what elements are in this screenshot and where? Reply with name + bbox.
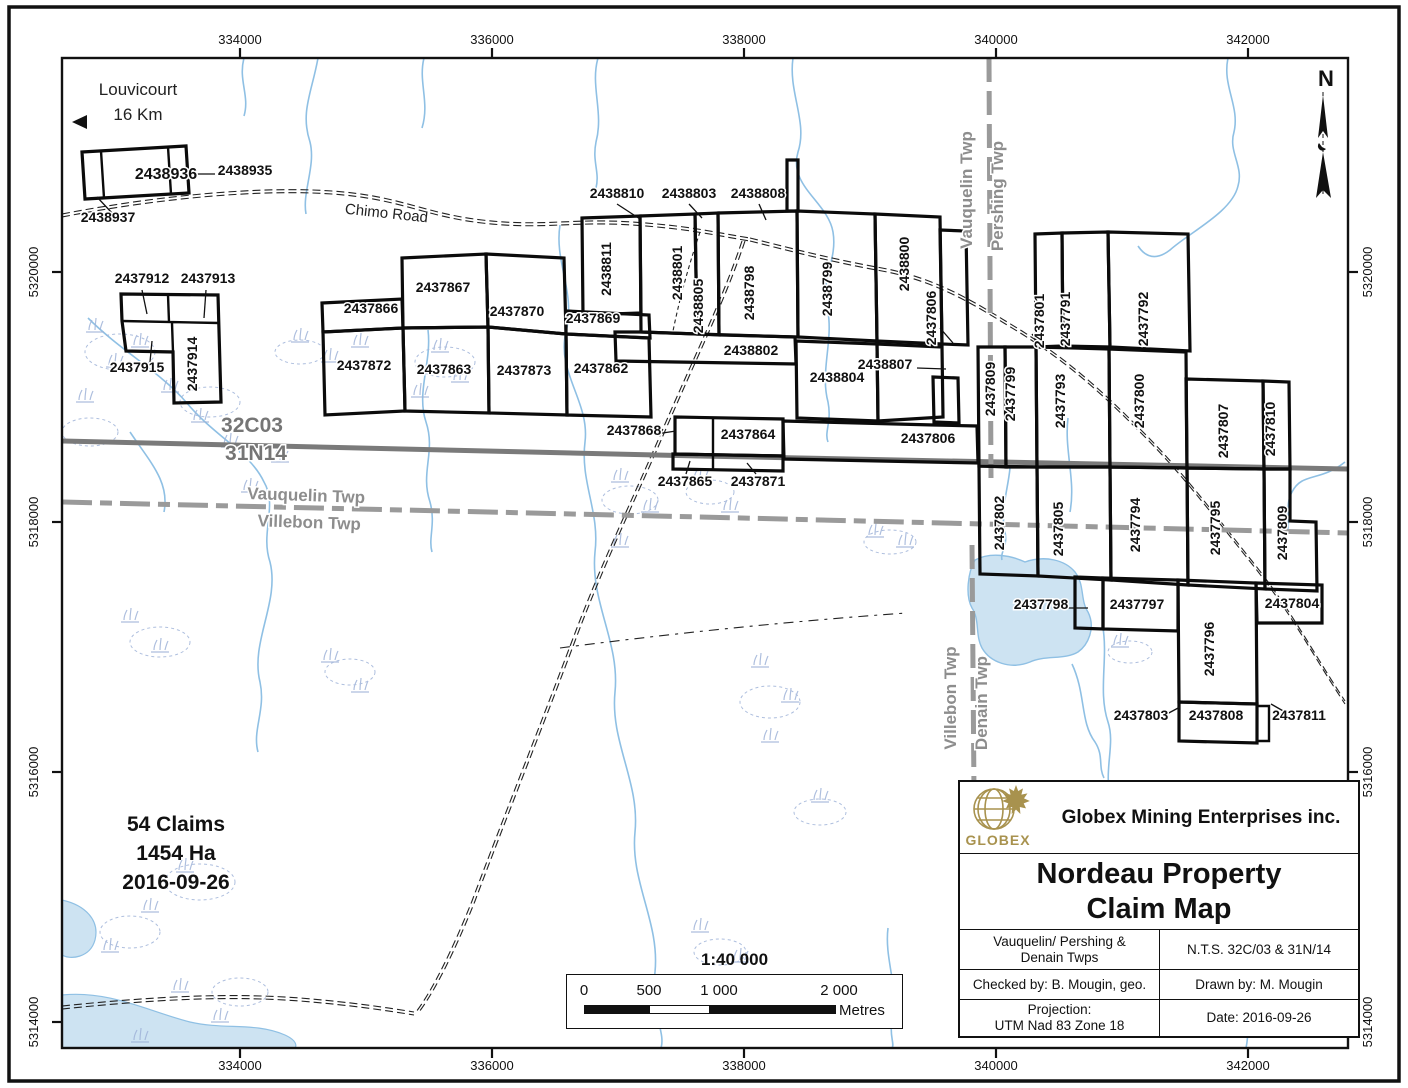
claim-area: 1454 Ha <box>96 839 256 868</box>
claim-label: 2437792 <box>1135 292 1151 347</box>
easting-label: 342000 <box>1226 32 1269 47</box>
northing-label: 5314000 <box>1360 997 1375 1048</box>
chimo-road-label: Chimo Road <box>344 201 429 227</box>
scale-ratio: 1:40 000 <box>566 950 903 970</box>
easting-label: 338000 <box>722 1058 765 1073</box>
easting-label: 340000 <box>974 1058 1017 1073</box>
projection-line2: UTM Nad 83 Zone 18 <box>995 1018 1125 1034</box>
northing-label: 5320000 <box>1360 247 1375 298</box>
claim-label: 2437794 <box>1127 498 1143 553</box>
nts-cell: N.T.S. 32C/03 & 31N/14 <box>1160 930 1358 969</box>
claim-label: 2438808 <box>731 185 786 201</box>
map-title-line1: Nordeau Property <box>960 857 1358 892</box>
scale-tick-0: 0 <box>580 982 588 999</box>
easting-label: 334000 <box>218 32 261 47</box>
louvicourt-label: Louvicourt <box>99 80 178 99</box>
claim-label: 2438811 <box>598 242 614 296</box>
northing-label: 5314000 <box>26 997 41 1048</box>
claim-label: 2437795 <box>1207 501 1223 556</box>
northing-label: 5318000 <box>1360 497 1375 548</box>
denain-twp-vertical-label: Denain Twp <box>972 656 991 750</box>
townships-line2: Denain Twps <box>1021 950 1099 966</box>
claim-label: 2437863 <box>417 361 472 377</box>
claim-label: 2437796 <box>1201 622 1217 677</box>
easting-label: 336000 <box>470 32 513 47</box>
date-cell: Date: 2016-09-26 <box>1160 1000 1358 1036</box>
claim-label: 2437801 <box>1031 294 1047 349</box>
map-title-line2: Claim Map <box>960 892 1358 927</box>
scale-bar-box: 0 500 1 000 2 000 Metres <box>566 974 903 1029</box>
villebon-twp-label: Villebon Twp <box>257 511 361 534</box>
easting-label: 342000 <box>1226 1058 1269 1073</box>
claim-label: 2437912 <box>115 270 170 286</box>
townships-line1: Vauquelin/ Pershing & <box>993 934 1126 950</box>
claim-label: 2437809 <box>982 362 998 417</box>
claim-label: 2438803 <box>662 185 717 201</box>
claim-label: 2437808 <box>1189 707 1244 723</box>
easting-label: 336000 <box>470 1058 513 1073</box>
north-arrow-label: N <box>1318 66 1334 91</box>
claim-label: 2437869 <box>566 310 621 326</box>
louvicourt-distance-label: 16 Km <box>113 105 162 124</box>
claim-label: 2437865 <box>658 473 713 489</box>
easting-label: 334000 <box>218 1058 261 1073</box>
claim-label: 2437798 <box>1014 596 1069 612</box>
scale-tick-1000: 1 000 <box>700 982 738 999</box>
claim-label: 2437805 <box>1050 502 1066 557</box>
claim-label: 2437810 <box>1262 402 1278 457</box>
projection-cell: Projection: UTM Nad 83 Zone 18 <box>960 1000 1160 1036</box>
globex-logo-text: GLOBEX <box>965 832 1030 848</box>
pershing-twp-vertical-label: Pershing Twp <box>988 141 1007 251</box>
claim-label: 2437804 <box>1265 595 1320 611</box>
claim-label: 2438802 <box>724 342 779 358</box>
nts-sheet-31n14-label: 31N14 <box>225 442 287 465</box>
claim-label: 2437870 <box>490 303 545 319</box>
checked-by-cell: Checked by: B. Mougin, geo. <box>960 970 1160 999</box>
claim-label: 2438801 <box>669 246 685 301</box>
vauquelin-twp-label: Vauquelin Twp <box>247 484 365 507</box>
claim-label: 2438798 <box>741 266 757 321</box>
scale-tick-500: 500 <box>636 982 661 999</box>
scale-segment-black-2 <box>710 1005 836 1014</box>
northing-label: 5320000 <box>26 247 41 298</box>
claim-label: 2437802 <box>991 496 1007 551</box>
claim-label: 2437809 <box>1274 506 1290 561</box>
claim-label: 2437797 <box>1110 596 1165 612</box>
vauquelin-twp-vertical-label: Vauquelin Twp <box>957 131 976 249</box>
claim-label: 2438935 <box>218 162 273 178</box>
nts-sheet-32c03-label: 32C03 <box>221 414 283 437</box>
west-direction-arrow-icon <box>72 115 87 129</box>
claim-label: 2437799 <box>1002 367 1018 422</box>
township-boundary-horizontal <box>62 502 1348 533</box>
easting-label: 338000 <box>722 32 765 47</box>
claim-label: 2438805 <box>690 279 706 334</box>
title-block: GLOBEX Globex Mining Enterprises inc. No… <box>958 780 1360 1038</box>
claim-label: 2437862 <box>574 360 629 376</box>
claim-label: 2437864 <box>721 426 776 442</box>
claim-label: 2437807 <box>1215 404 1231 459</box>
claim-label: 2437866 <box>344 300 399 316</box>
claim-count: 54 Claims <box>96 810 256 839</box>
northing-label: 5318000 <box>26 497 41 548</box>
easting-label: 340000 <box>974 32 1017 47</box>
scale-unit-label: Metres <box>839 1002 885 1019</box>
claim-label: 2437806 <box>901 430 956 446</box>
map-annotations: Louvicourt16 KmChimo Road32C0331N14Vauqu… <box>99 66 1334 750</box>
claim-label: 2437803 <box>1114 707 1169 723</box>
company-name: Globex Mining Enterprises inc. <box>1044 807 1358 829</box>
claim-label: 2437811 <box>1272 707 1326 723</box>
projection-line1: Projection: <box>1028 1002 1092 1018</box>
claim-label: 2438937 <box>81 209 136 225</box>
claim-map-page: 3340003340003360003360003380003380003400… <box>0 0 1408 1088</box>
claim-label: 2437800 <box>1131 374 1147 429</box>
northing-label: 5316000 <box>1360 747 1375 798</box>
claim-label: 2438800 <box>896 237 912 292</box>
villebon-twp-vertical-label: Villebon Twp <box>941 646 960 749</box>
townships-cell: Vauquelin/ Pershing & Denain Twps <box>960 930 1160 969</box>
drawn-by-cell: Drawn by: M. Mougin <box>1160 970 1358 999</box>
claim-label: 2438810 <box>590 185 645 201</box>
claim-label: 2437872 <box>337 357 392 373</box>
claim-label: 2437867 <box>416 279 471 295</box>
claim-label: 2437791 <box>1057 292 1073 347</box>
scale-tick-2000: 2 000 <box>820 982 858 999</box>
claim-date: 2016-09-26 <box>96 868 256 897</box>
claim-label: 2438804 <box>810 369 865 385</box>
claim-label: 2437793 <box>1052 374 1068 429</box>
claim-label: 2437806 <box>923 291 939 346</box>
claim-label: 2437913 <box>181 270 236 286</box>
claim-label: 2437915 <box>110 359 165 375</box>
scale-bar: 1:40 000 0 500 1 000 2 000 Metres <box>566 950 903 1029</box>
northing-label: 5316000 <box>26 747 41 798</box>
claim-label: 2438799 <box>819 262 835 317</box>
scale-segment-white <box>649 1005 710 1014</box>
claim-summary-note: 54 Claims 1454 Ha 2016-09-26 <box>96 810 256 897</box>
claim-label: 2438807 <box>858 356 913 372</box>
claim-label: 2437873 <box>497 362 552 378</box>
claim-label: 2437871 <box>731 473 786 489</box>
claim-label: 2438936 <box>135 166 197 183</box>
scale-segment-black-1 <box>584 1005 649 1014</box>
north-arrow-icon <box>1316 92 1331 198</box>
globex-logo: GLOBEX <box>960 783 1044 853</box>
claim-label: 2437868 <box>607 422 662 438</box>
claim-label: 2437914 <box>184 337 200 392</box>
